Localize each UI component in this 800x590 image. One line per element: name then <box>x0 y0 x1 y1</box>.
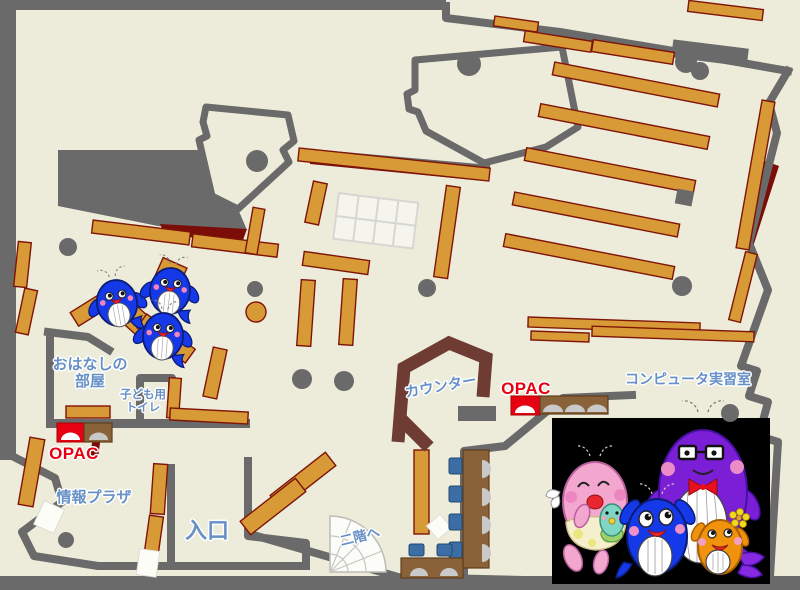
whale-baby-icon <box>600 504 624 542</box>
opac-station-right <box>511 396 608 415</box>
label-opac-right: OPAC <box>488 379 564 399</box>
chair <box>409 544 424 556</box>
chair <box>449 486 462 502</box>
label-entrance: 入口 <box>157 518 257 543</box>
round-table <box>246 302 266 322</box>
chair <box>449 458 462 474</box>
label-computer-room: コンピュータ実習室 <box>598 371 778 387</box>
chair <box>449 514 462 530</box>
library-floor-map: おはなしの 部屋 子ども用 トイレ OPAC 情報プラザ 入口 カウンター OP… <box>0 0 800 590</box>
study-tables-grid <box>332 192 419 250</box>
chair <box>437 544 452 556</box>
label-info-plaza: 情報プラザ <box>27 489 161 506</box>
label-storytime-room: おはなしの 部屋 <box>25 356 155 391</box>
pillar <box>721 404 739 422</box>
counter-desk <box>458 406 496 421</box>
mascot-family-photo <box>546 401 770 584</box>
label-kids-toilet: 子ども用 トイレ <box>103 389 183 415</box>
opac-station-left <box>57 423 112 442</box>
label-opac-left: OPAC <box>36 444 112 464</box>
